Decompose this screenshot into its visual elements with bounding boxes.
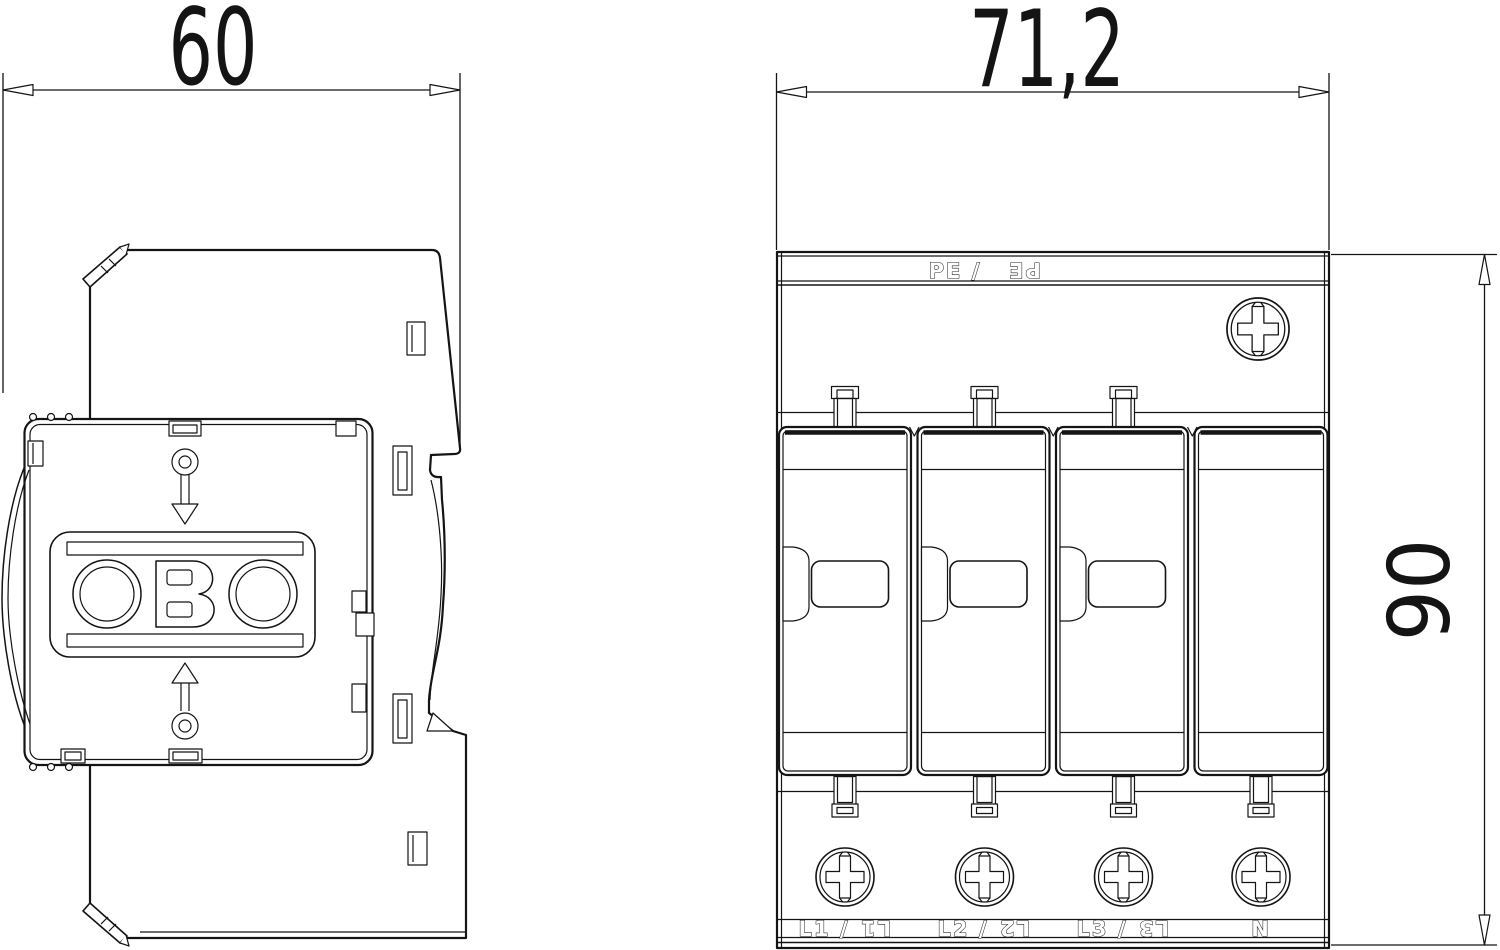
- arrowhead-up-icon: [1479, 255, 1490, 285]
- terminal-tongue-top: [832, 387, 859, 428]
- arrowhead-right-icon: [430, 85, 460, 96]
- vent-slot: [393, 446, 412, 495]
- dimension-value-90: 90: [1370, 539, 1469, 642]
- label-l1-mirrored: L1: [859, 916, 891, 940]
- pe-label-normal: PE /: [929, 259, 982, 283]
- pe-terminal-screw: [1227, 298, 1289, 360]
- pe-label-mirrored: PE: [1007, 258, 1041, 282]
- label-l2-mirrored: L2: [998, 916, 1030, 940]
- terminal-tongue-bottom: [1111, 777, 1137, 818]
- dimension-height: 90: [1331, 255, 1497, 946]
- arrowhead-down-icon: [1479, 915, 1490, 945]
- plug-in-module-side: [2, 414, 374, 771]
- module-latch-tab: [783, 547, 809, 621]
- l1-terminal-screw: [816, 848, 874, 906]
- arrowhead-left-icon: [777, 87, 807, 98]
- module-window: [1089, 561, 1166, 607]
- vent-slot: [407, 322, 425, 355]
- l3-terminal-screw: [1095, 848, 1153, 906]
- terminal-tongue-top: [971, 387, 998, 428]
- label-l3-mirrored: L3: [1137, 916, 1169, 940]
- terminal-tongue-bottom: [972, 777, 998, 818]
- dimension-value-71-2: 71,2: [969, 0, 1125, 112]
- obo-logo: [50, 532, 315, 657]
- module-l3: [1056, 427, 1188, 775]
- module-latch-tab: [922, 547, 948, 621]
- dimension-value-60: 60: [168, 0, 257, 110]
- label-l3-normal: L3 /: [1077, 917, 1128, 941]
- label-l1-normal: L1 /: [799, 917, 850, 941]
- vent-slot: [408, 832, 427, 865]
- arrowhead-left-icon: [3, 85, 33, 96]
- terminal-tongue-bottom: [1248, 777, 1274, 818]
- label-l2-normal: L2 /: [938, 917, 989, 941]
- technical-drawing: 60 71,2 90: [0, 0, 1500, 950]
- side-view: [2, 244, 466, 946]
- module-l2: [918, 427, 1050, 775]
- module-window: [950, 561, 1027, 607]
- arrowhead-right-icon: [1299, 87, 1329, 98]
- module-l1: [779, 427, 911, 775]
- terminal-tongue-bottom: [832, 777, 858, 818]
- module-n: [1195, 427, 1328, 775]
- module-latch-tab: [1060, 547, 1086, 621]
- module-window: [812, 561, 889, 607]
- front-view: PE / PE L1 / L1 L2 / L2 L3 / L3 N: [777, 252, 1329, 948]
- vent-slot: [393, 694, 412, 743]
- l2-terminal-screw: [956, 848, 1014, 906]
- dimension-front-width: 71,2: [777, 0, 1330, 250]
- terminal-tongue-top: [1110, 387, 1137, 428]
- n-terminal-screw: [1232, 848, 1290, 906]
- drawing-sheet: 60 71,2 90: [0, 0, 1500, 950]
- label-n: N: [1251, 917, 1271, 941]
